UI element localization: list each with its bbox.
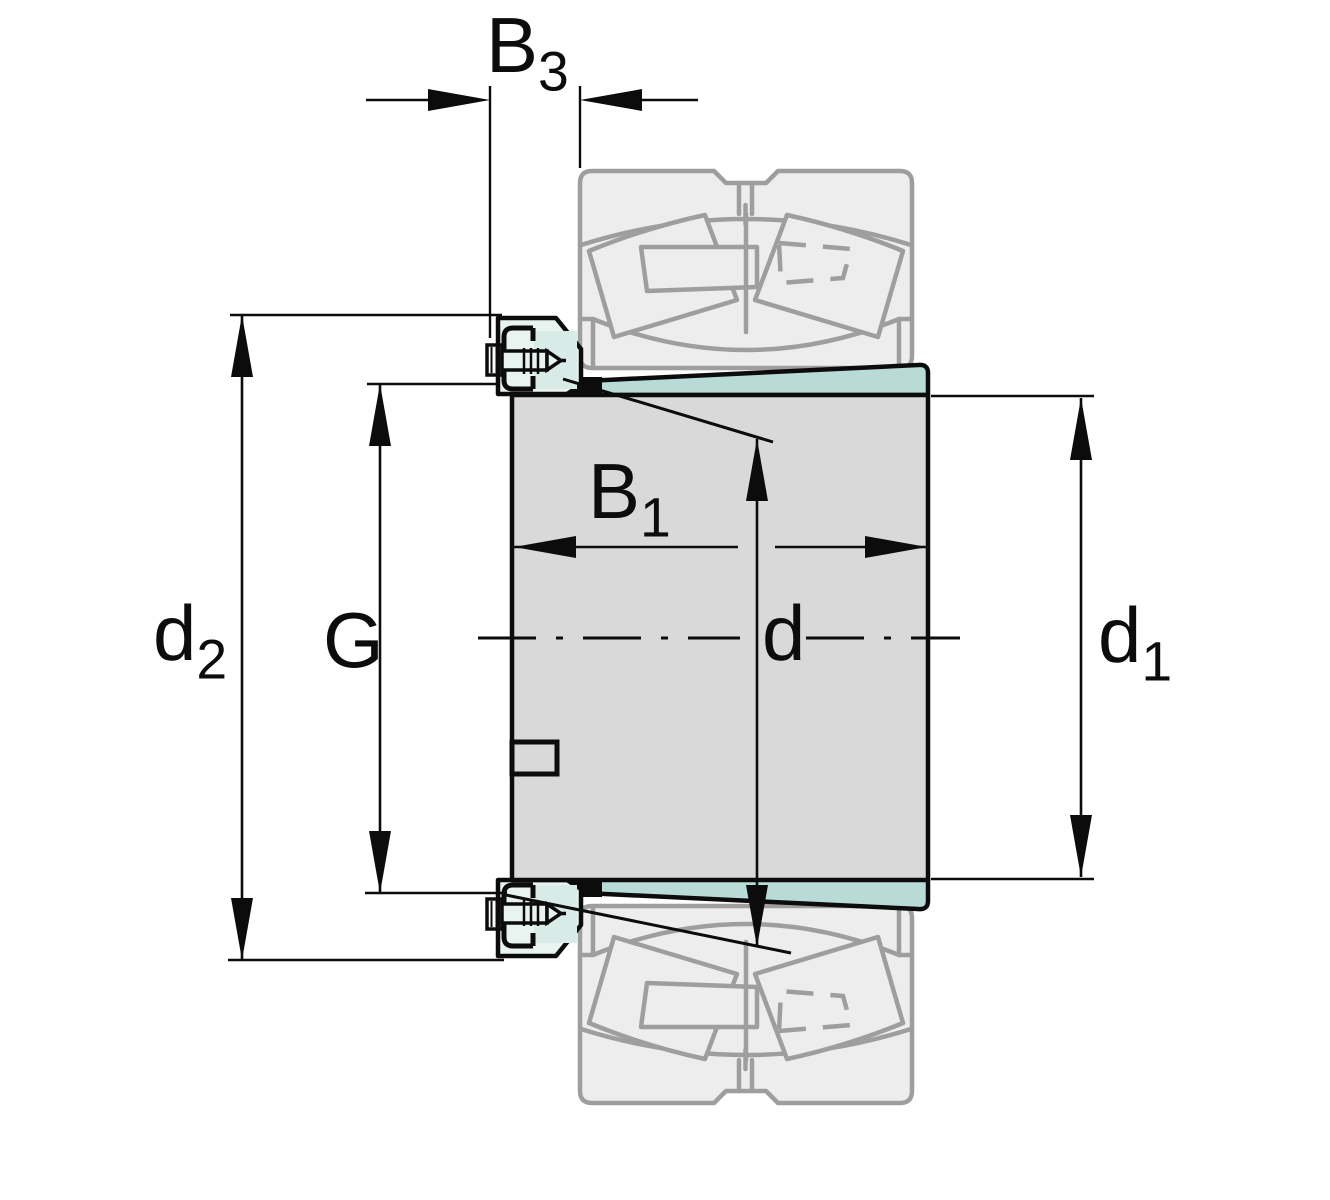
label-d1: d1 — [1098, 596, 1172, 674]
b3-extension-lines — [490, 86, 580, 338]
label-b3: B3 — [486, 6, 569, 84]
label-b1-sub: 1 — [640, 486, 671, 548]
label-g-base: G — [323, 596, 384, 684]
b3-arrowhead-right-icon — [428, 89, 490, 111]
label-b3-base: B — [486, 1, 538, 89]
sleeve-slot-notch — [512, 742, 557, 774]
d2-arrowhead-down-icon — [231, 898, 253, 960]
label-d1-base: d — [1098, 591, 1141, 679]
b3-arrowhead-left-icon — [580, 89, 642, 111]
label-b1-base: B — [588, 447, 640, 535]
g-arrowhead-up-icon — [369, 384, 391, 446]
label-d: d — [762, 594, 805, 672]
label-d2: d2 — [153, 594, 227, 672]
technical-drawing-canvas: B3 B1 d2 G d d1 — [0, 0, 1330, 1200]
label-g: G — [323, 601, 384, 679]
label-d1-sub: 1 — [1141, 630, 1172, 692]
bottom-assembly-mirrored — [487, 878, 928, 1103]
label-b1: B1 — [588, 452, 671, 530]
label-b3-sub: 3 — [538, 40, 569, 102]
d2-arrowhead-up-icon — [231, 315, 253, 377]
label-d-base: d — [762, 589, 805, 677]
g-arrowhead-down-icon — [369, 831, 391, 893]
label-d2-base: d — [153, 589, 196, 677]
d1-arrowhead-down-icon — [1070, 815, 1092, 877]
label-d2-sub: 2 — [196, 628, 227, 690]
d1-arrowhead-up-icon — [1070, 398, 1092, 460]
top-assembly — [487, 171, 928, 396]
